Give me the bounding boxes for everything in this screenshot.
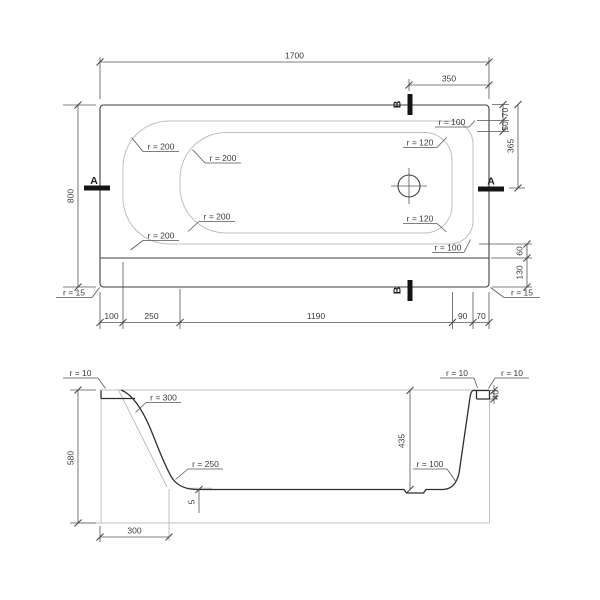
dim-bottom-slope: 5 [187, 499, 197, 504]
section-marker-b: B B [392, 94, 411, 301]
radius-rim-bottom-left: r = 200 [148, 231, 175, 241]
dim-chain-right-slope: 90 [458, 311, 468, 321]
dim-rim-bottom: 60 [515, 246, 525, 256]
section-left-rim-profile [101, 391, 135, 399]
dim-rim-thickness: 40 [491, 390, 501, 400]
radius-floor-bottom-right: r = 120 [407, 214, 434, 224]
dim-deck-bottom: 130 [515, 265, 525, 279]
dim-total-height: 580 [66, 451, 76, 465]
section-tub-profile [121, 390, 474, 493]
radius-floor-top-left: r = 200 [210, 153, 237, 163]
dim-chain-left-deck: 100 [104, 311, 118, 321]
dim-floor-top: 50 [500, 121, 510, 131]
radius-leader-floor-left [176, 469, 224, 480]
section-radius-labels: r = 10 r = 300 r = 250 r = 100 r = 10 r … [63, 368, 529, 482]
radius-wall-left: r = 300 [150, 393, 177, 403]
radius-rim-left: r = 10 [70, 368, 92, 378]
plan-view: A A B B 1700 350 800 70 50 [56, 51, 540, 330]
radius-leader-rim-right-inner [440, 378, 478, 388]
section-b-top-label: B [392, 100, 404, 108]
section-view: 580 435 300 40 5 r = 10 r = 300 r = 250 [63, 368, 529, 542]
dim-overall-width: 800 [66, 189, 76, 203]
radius-rim-right-outer: r = 10 [501, 368, 523, 378]
radius-corner-bottom-left: r = 15 [63, 288, 85, 298]
radius-leader-floor-bottom-left [188, 222, 235, 232]
radius-leader-floor-right [413, 469, 456, 482]
radius-leader-rim-right-outer [489, 378, 530, 389]
section-b-bottom-label: B [392, 286, 404, 294]
section-boundary-lines [78, 390, 490, 523]
radius-corner-bottom-right: r = 15 [511, 288, 533, 298]
radius-floor-right: r = 100 [417, 459, 444, 469]
dim-rim-top: 70 [500, 108, 510, 118]
dim-chain-left-slope: 250 [144, 311, 158, 321]
dim-b-offset: 350 [442, 74, 456, 84]
dim-1700-lines [100, 57, 489, 99]
dim-left-slope-width: 300 [127, 526, 141, 536]
radius-floor-bottom-left: r = 200 [204, 212, 231, 222]
radius-rim-top-right: r = 100 [439, 117, 466, 127]
dim-chain-floor: 1190 [307, 311, 326, 321]
section-a-left-label: A [90, 175, 98, 187]
radius-floor-top-right: r = 120 [407, 138, 434, 148]
drain-symbol [391, 168, 427, 204]
dim-inner-depth: 435 [397, 434, 407, 448]
section-a-right-label: A [487, 176, 495, 188]
dim-chain-right-deck: 70 [476, 311, 486, 321]
section-marker-a: A A [84, 175, 504, 189]
radius-rim-bottom-right: r = 100 [435, 243, 462, 253]
dim-overall-length: 1700 [285, 51, 304, 61]
section-right-rim-profile [474, 391, 490, 400]
drain-crosshair [391, 168, 427, 204]
radius-leader-rim-left [63, 378, 106, 389]
radius-rim-top-left: r = 200 [148, 142, 175, 152]
dim-drain-from-top: 365 [506, 139, 516, 153]
radius-floor-left: r = 250 [192, 459, 219, 469]
radius-rim-right-inner: r = 10 [446, 368, 468, 378]
bathtub-technical-drawing: A A B B 1700 350 800 70 50 [0, 0, 600, 600]
